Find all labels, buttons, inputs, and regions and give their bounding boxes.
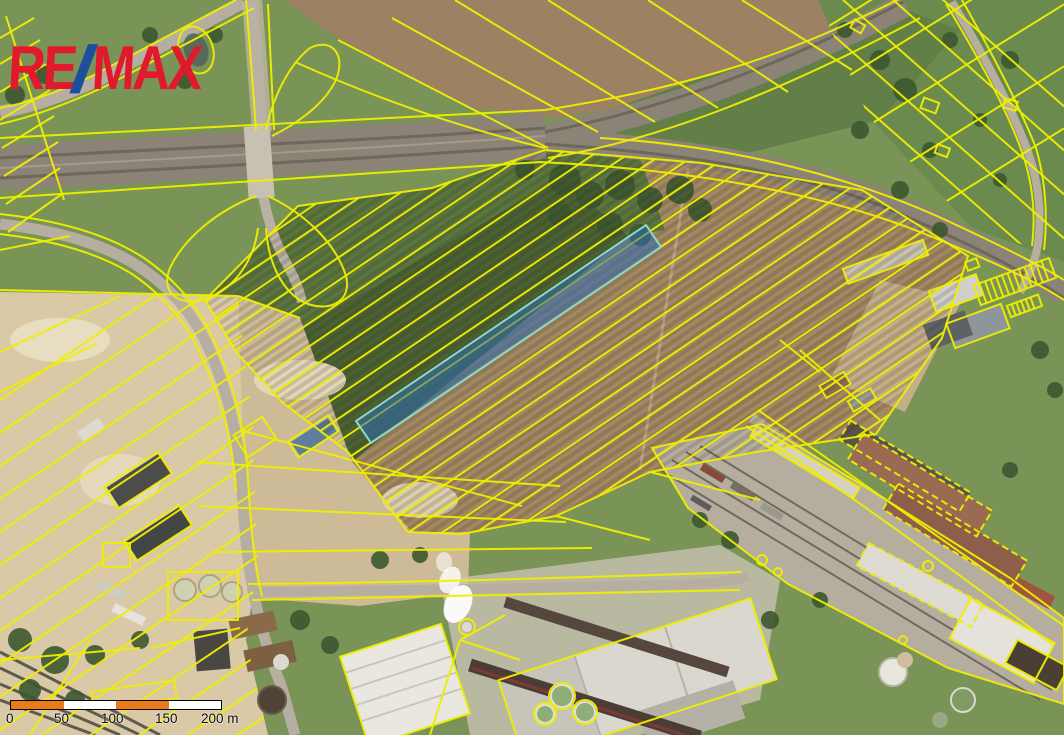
scalebar-segment: [116, 701, 169, 709]
railway-bridge: [244, 125, 275, 199]
logo-max: MAX: [91, 40, 203, 98]
scalebar-label: 150: [155, 711, 178, 726]
scalebar-segment: [64, 701, 117, 709]
remax-logo: RE / MAX: [8, 40, 201, 98]
scalebar-labels: 0 50 100 150 200 m: [10, 710, 222, 728]
scalebar-label: 100: [101, 711, 124, 726]
aerial-map: [0, 0, 1064, 735]
scalebar-segment: [169, 701, 222, 709]
logo-re: RE: [6, 40, 77, 98]
scalebar-label: 50: [54, 711, 69, 726]
scalebar-segment: [11, 701, 64, 709]
scalebar-label: 0: [6, 711, 14, 726]
cadastral-map-image: RE / MAX 0 50 100 150 200 m: [0, 0, 1064, 735]
map-scalebar: 0 50 100 150 200 m: [10, 700, 222, 728]
scalebar-label: 200 m: [201, 711, 239, 726]
scalebar-segments: [10, 700, 222, 710]
